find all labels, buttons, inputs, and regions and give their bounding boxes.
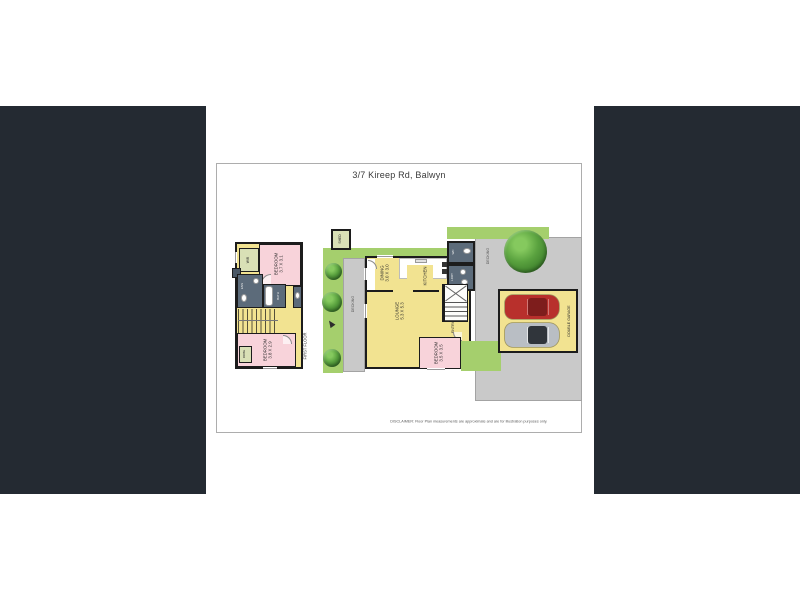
tree-icon xyxy=(504,230,547,273)
car-cabin xyxy=(528,326,547,344)
right-dark-panel xyxy=(594,106,800,494)
sink xyxy=(253,278,259,284)
page-title: 3/7 Kireep Rd, Balwyn xyxy=(217,170,581,180)
bedroom3-dims: 3.5 X 3.5 xyxy=(440,342,445,364)
bath-label: BATH xyxy=(277,292,281,300)
window xyxy=(364,268,367,280)
window xyxy=(234,252,237,263)
kitchen-label: KITCHEN xyxy=(423,267,428,286)
interior-wall xyxy=(367,290,393,292)
ensuite-room xyxy=(237,274,263,308)
window xyxy=(364,304,367,318)
decking-right-label: DECKING xyxy=(487,248,491,264)
window xyxy=(263,367,277,370)
shed-label: SHED xyxy=(339,234,343,243)
wc-label: WC xyxy=(452,250,456,255)
red-car-icon xyxy=(505,295,559,319)
bedroom2-dims: 3.8 X 2.9 xyxy=(269,339,274,361)
lounge-label: LOUNGE 5.3 X 5.3 xyxy=(396,302,406,320)
floorplan-page: 3/7 Kireep Rd, Balwyn SHED DECKING DECKI… xyxy=(216,163,582,433)
cooktop xyxy=(415,259,427,263)
decking-left-label: DECKING xyxy=(352,296,356,312)
bedroom1-label: BEDROOM 3.7 X 3.1 xyxy=(275,253,285,275)
stair-treads xyxy=(445,302,467,322)
toilet xyxy=(295,292,300,299)
toilet xyxy=(241,294,247,302)
bathtub xyxy=(265,286,273,306)
first-floor-label: FIRST FLOOR xyxy=(304,333,309,360)
bedroom3-label: BEDROOM 3.5 X 3.5 xyxy=(435,342,445,364)
ensuite-label: ENS xyxy=(241,283,245,289)
tree-icon xyxy=(323,349,341,367)
laundry-label: LDRY xyxy=(451,273,455,281)
stair-rail xyxy=(238,320,278,321)
tree-icon xyxy=(325,263,342,280)
screenshot-canvas: 3/7 Kireep Rd, Balwyn SHED DECKING DECKI… xyxy=(0,0,800,600)
lounge-dims: 5.3 X 5.3 xyxy=(401,302,406,320)
car-cabin xyxy=(528,298,547,316)
car-windshield xyxy=(527,327,529,344)
tree-icon xyxy=(322,292,342,312)
sink xyxy=(460,269,466,275)
dining-label: DINING 3.0 X 3.0 xyxy=(381,264,391,281)
wir-label: WIR xyxy=(247,257,251,263)
grass-rear-patch xyxy=(461,341,501,371)
wc-room xyxy=(447,241,475,264)
disclaimer-text: DISCLAIMER: Floor Plan measurements are … xyxy=(390,420,547,424)
left-dark-panel xyxy=(0,106,206,494)
decking-left-area xyxy=(343,258,365,372)
kitchen-floor-notch xyxy=(407,265,433,279)
garage-label: DOUBLE GARAGE xyxy=(568,305,572,336)
bedroom1-dims: 3.7 X 3.1 xyxy=(280,253,285,275)
stairs-ground xyxy=(444,284,468,322)
robe-label: ROBE xyxy=(243,350,247,359)
dining-dims: 3.0 X 3.0 xyxy=(386,264,391,281)
interior-wall xyxy=(413,290,439,292)
window xyxy=(377,255,393,258)
car-rear-glass xyxy=(548,327,550,344)
silver-car-icon xyxy=(505,323,559,347)
bedroom2-label: BEDROOM 3.8 X 2.9 xyxy=(264,339,274,361)
car-windshield xyxy=(527,299,529,316)
car-rear-glass xyxy=(548,299,550,316)
window xyxy=(427,368,445,371)
stairs-first xyxy=(238,309,278,333)
toilet xyxy=(463,248,471,254)
